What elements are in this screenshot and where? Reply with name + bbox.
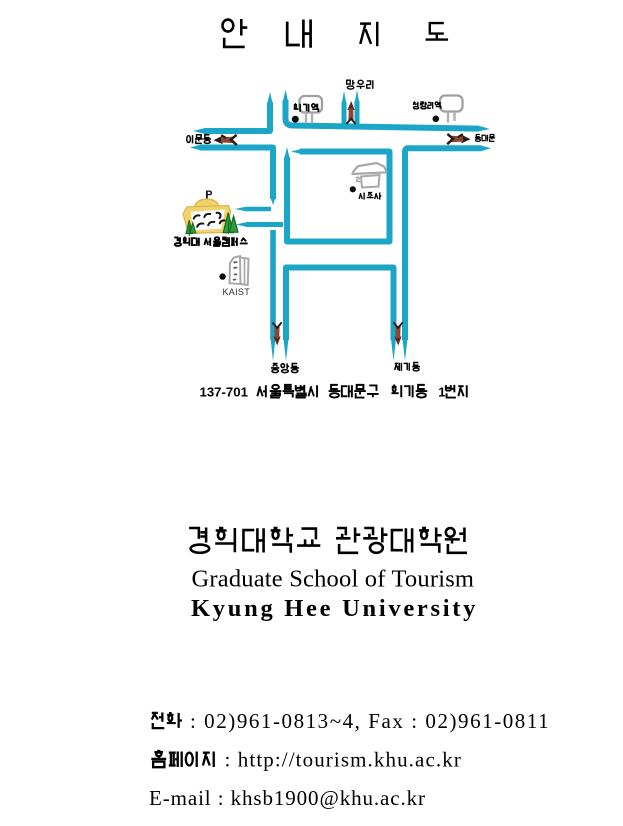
svg-text:137-701: 137-701 — [200, 384, 248, 399]
svg-text:1: 1 — [438, 384, 445, 399]
svg-text:: 02)961-0813~4, Fax : 02)961-: : 02)961-0813~4, Fax : 02)961-0811 — [190, 709, 550, 733]
svg-text:E-mail : khsb1900@khu.ac.kr: E-mail : khsb1900@khu.ac.kr — [149, 786, 426, 810]
svg-text:: http://tourism.khu.ac.kr: : http://tourism.khu.ac.kr — [225, 748, 462, 772]
svg-text:KAIST: KAIST — [223, 287, 251, 297]
svg-text:Kyung Hee University: Kyung Hee University — [191, 595, 478, 622]
svg-text:Graduate School of Tourism: Graduate School of Tourism — [192, 566, 475, 593]
